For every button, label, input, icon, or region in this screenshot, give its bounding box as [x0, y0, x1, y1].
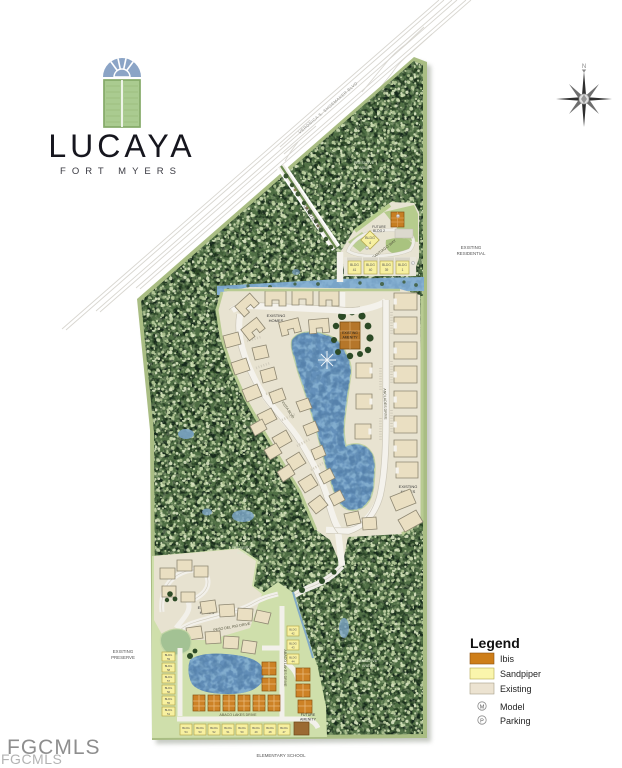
svg-text:RESIDENTIAL: RESIDENTIAL [457, 251, 486, 256]
svg-text:LUCAYA: LUCAYA [48, 128, 195, 164]
svg-text:ELEMENTARY SCHOOL: ELEMENTARY SCHOOL [256, 753, 306, 758]
svg-text:N: N [582, 64, 586, 70]
svg-text:59: 59 [167, 657, 171, 661]
svg-text:PRESERVE: PRESERVE [354, 161, 375, 165]
svg-text:FUTURE: FUTURE [301, 713, 316, 717]
svg-text:ABACO LAKES DRIVE: ABACO LAKES DRIVE [283, 649, 287, 687]
svg-text:PRESERVE: PRESERVE [232, 546, 253, 550]
svg-text:AREA: AREA [359, 166, 370, 170]
svg-text:57: 57 [167, 679, 171, 683]
svg-text:EXISTING: EXISTING [342, 331, 358, 335]
svg-text:M: M [480, 705, 485, 711]
svg-text:Parking: Parking [500, 716, 531, 726]
svg-text:M: M [397, 216, 399, 218]
svg-text:FGCMLS: FGCMLS [1, 751, 62, 767]
svg-text:Existing: Existing [500, 684, 532, 694]
svg-text:55: 55 [167, 701, 171, 705]
svg-text:53: 53 [198, 730, 202, 734]
svg-text:58: 58 [167, 668, 171, 672]
svg-text:FORT MYERS: FORT MYERS [60, 166, 182, 177]
svg-text:EXISTING: EXISTING [461, 245, 482, 250]
svg-text:50: 50 [240, 730, 244, 734]
svg-text:BLDG: BLDG [382, 263, 391, 267]
svg-text:AMENITY: AMENITY [300, 718, 317, 722]
svg-text:39: 39 [385, 268, 389, 272]
svg-text:BLDG: BLDG [350, 263, 359, 267]
svg-text:AREA: AREA [362, 664, 373, 668]
svg-text:Sandpiper: Sandpiper [500, 669, 541, 679]
svg-text:4: 4 [369, 241, 371, 245]
svg-text:48: 48 [268, 730, 272, 734]
svg-text:BLDG 2: BLDG 2 [373, 229, 385, 233]
svg-text:Legend: Legend [470, 635, 520, 651]
svg-text:52: 52 [212, 730, 216, 734]
svg-text:EXISTING: EXISTING [113, 649, 134, 654]
svg-text:AMENITY: AMENITY [342, 336, 358, 340]
svg-text:41: 41 [353, 268, 357, 272]
svg-text:47: 47 [282, 730, 286, 734]
svg-text:54: 54 [184, 730, 188, 734]
svg-text:56: 56 [167, 690, 171, 694]
svg-text:Model: Model [500, 702, 525, 712]
svg-text:P: P [480, 719, 484, 725]
svg-text:51: 51 [226, 730, 230, 734]
svg-text:40: 40 [369, 268, 373, 272]
svg-text:M: M [366, 248, 368, 250]
svg-text:1: 1 [402, 268, 404, 272]
svg-text:Ibis: Ibis [500, 654, 515, 664]
svg-text:42: 42 [291, 632, 295, 636]
svg-text:AREA: AREA [237, 551, 248, 555]
svg-text:BLDG: BLDG [365, 236, 375, 240]
svg-text:PRESERVE: PRESERVE [357, 659, 378, 663]
svg-text:44: 44 [291, 660, 295, 664]
svg-text:PRESERVE: PRESERVE [111, 655, 135, 660]
svg-text:BLDG: BLDG [366, 263, 375, 267]
svg-text:BLDG: BLDG [398, 263, 407, 267]
svg-text:49: 49 [254, 730, 258, 734]
svg-text:51: 51 [167, 712, 171, 716]
svg-text:43: 43 [291, 646, 295, 650]
svg-text:ABACO LAKES DRIVE: ABACO LAKES DRIVE [219, 713, 257, 717]
